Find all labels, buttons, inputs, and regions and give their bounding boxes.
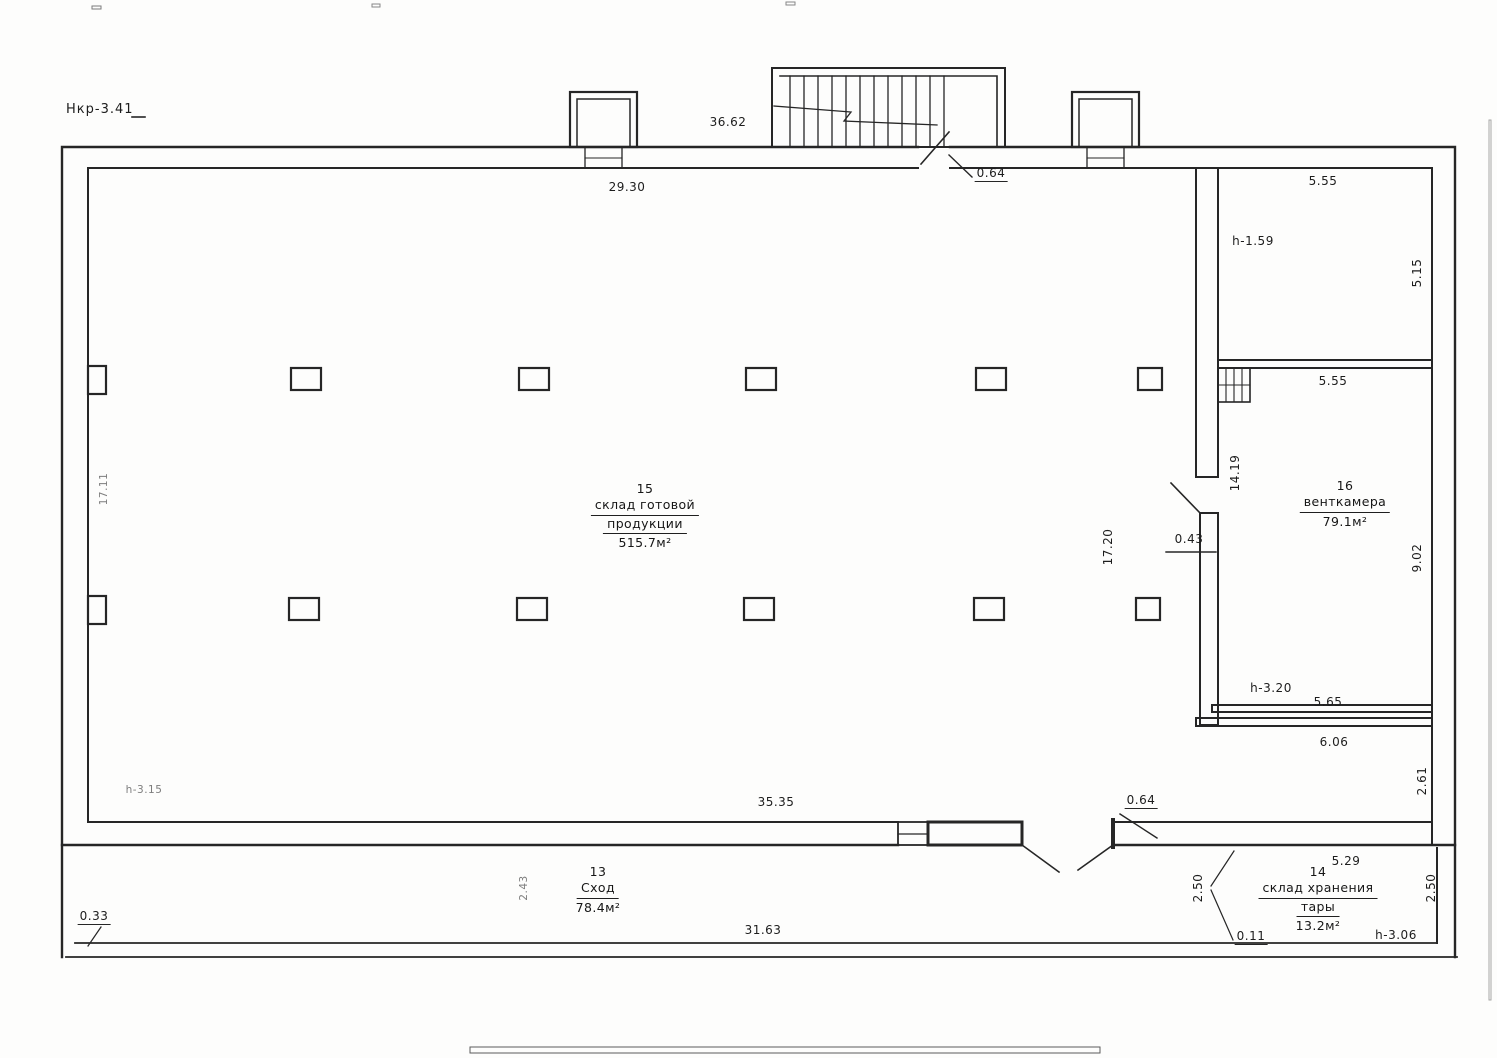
room-15-name-2: продукции [603,516,687,534]
dim-vent-height: h-3.20 [1250,681,1292,695]
dim-hall-right: 17.20 [1101,529,1115,566]
dim-ramp-gap: 0.33 [78,909,111,925]
dim-bottom-inner: 35.35 [758,795,795,809]
dim-niche-width: 6.06 [1320,735,1349,749]
room-13-area: 78.4м² [576,899,621,916]
room-14-number: 14 [1310,864,1327,880]
dim-vent-bottom: 5.65 [1314,695,1343,709]
dim-wall-length: 14.19 [1228,455,1242,492]
room-16-name: венткамера [1300,494,1390,512]
room-15-name-1: склад готовой [591,497,699,515]
dim-room17-right: 5.15 [1410,259,1424,288]
room-14-stamp: 14 склад хранения тары 13.2м² [1259,864,1378,934]
floor-plan-page: Нкр-3.41 36.62 29.30 0.64 5.55 h-1.59 5.… [0,0,1497,1058]
bottom-wall-window [898,822,1022,845]
room-13-number: 13 [590,864,607,880]
dim-hall-left: 17.11 [98,473,110,506]
vestibule-right [1072,92,1139,168]
bottom-door-swing [1022,845,1113,872]
room-14-area: 13.2м² [1296,917,1341,934]
dim-bottom-door: 0.64 [1125,793,1158,809]
room-16-area: 79.1м² [1323,513,1368,530]
dim-vent-width: 5.55 [1319,374,1348,388]
main-stairs [772,68,1005,147]
room-14-name-2: тары [1297,899,1339,917]
dim-wall-gap: 0.43 [1175,532,1204,546]
room-15-area: 515.7м² [618,534,671,551]
dim-top-outer: 36.62 [710,115,747,129]
dim-ramp-length: 31.63 [745,923,782,937]
partition-walls [1166,168,1432,726]
dim-top-door: 0.64 [975,166,1008,182]
dim-top-inner: 29.30 [609,180,646,194]
drawing-code: Нкр-3.41 [66,102,134,117]
room-15-number: 15 [637,481,654,497]
room-16-stamp: 16 венткамера 79.1м² [1300,478,1390,530]
vestibule-left [570,92,637,168]
top-door-swing [921,132,972,177]
dim-vent-right: 9.02 [1410,544,1424,573]
room-13-stamp: 13 Сход 78.4м² [576,864,621,916]
room-14-name-1: склад хранения [1259,880,1378,898]
dim-ramp-width: 2.43 [518,875,530,900]
dim-hall-height: h-3.15 [126,784,163,796]
room-13-name: Сход [577,880,619,898]
dim-niche-height: 2.61 [1415,767,1429,796]
dim-tare-left: 2.50 [1191,874,1205,903]
outer-walls [62,147,1455,957]
room-16-number: 16 [1337,478,1354,494]
vent-stairs-icon [1218,368,1250,402]
dim-tare-right: 2.50 [1424,874,1438,903]
dim-tare-height: h-3.06 [1375,928,1417,942]
room-15-stamp: 15 склад готовой продукции 515.7м² [591,481,699,551]
dim-room17-width: 5.55 [1309,174,1338,188]
dim-room17-height: h-1.59 [1232,234,1274,248]
